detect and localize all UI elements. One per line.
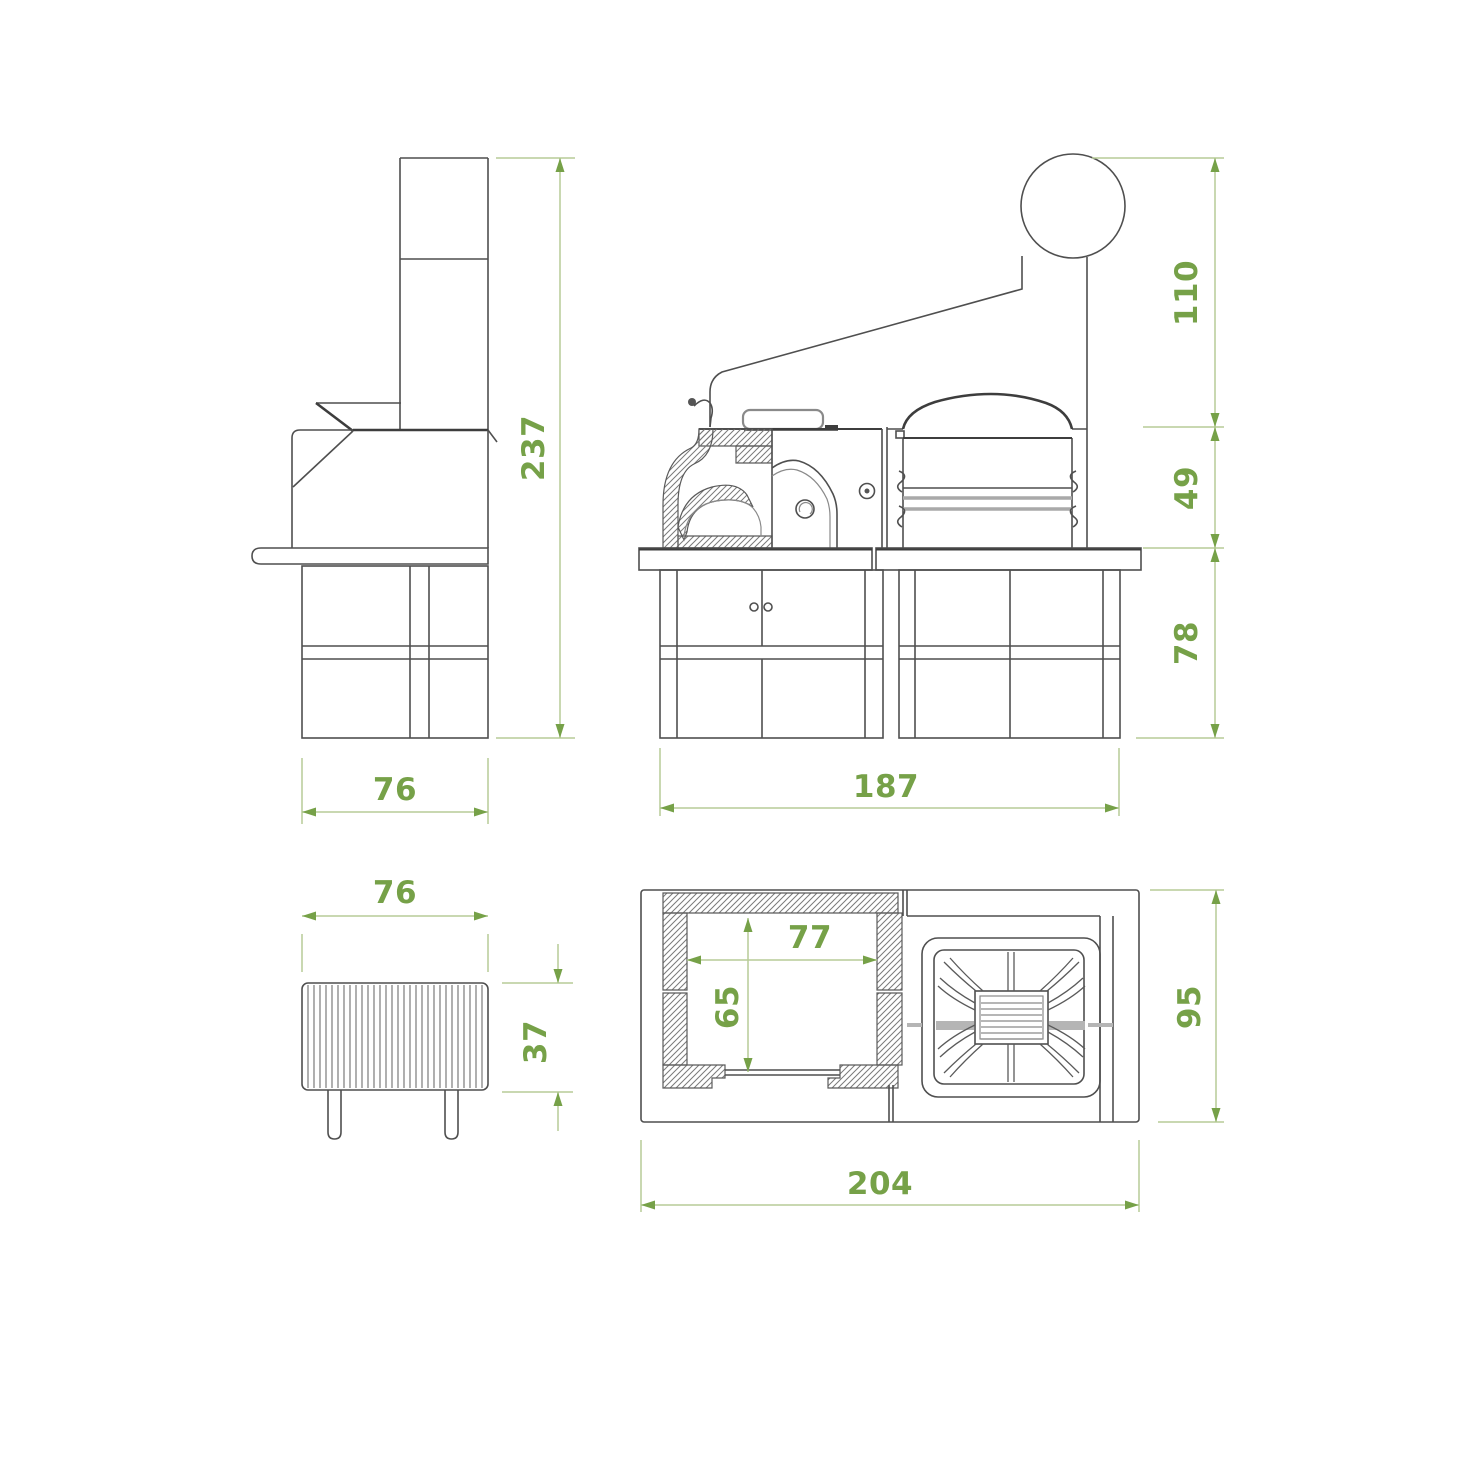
dim-label-76-grate: 76 [373, 875, 417, 911]
dim-label-204: 204 [847, 1166, 913, 1202]
dim-label-187: 187 [853, 769, 919, 805]
background [0, 0, 1480, 1480]
dim-label-110: 110 [1169, 260, 1205, 326]
dim-label-65: 65 [710, 985, 746, 1029]
dim-label-76-side: 76 [373, 772, 417, 808]
technical-drawing: 237 76 76 37 [0, 0, 1480, 1480]
dim-label-37: 37 [518, 1020, 554, 1064]
dim-label-237: 237 [516, 415, 552, 481]
dim-label-49: 49 [1169, 466, 1205, 510]
dim-label-95: 95 [1172, 985, 1208, 1029]
dim-label-77: 77 [788, 920, 832, 956]
dim-label-78: 78 [1169, 621, 1205, 665]
technical-drawing-page: 237 76 76 37 [0, 0, 1480, 1480]
oven-cap [743, 410, 823, 429]
